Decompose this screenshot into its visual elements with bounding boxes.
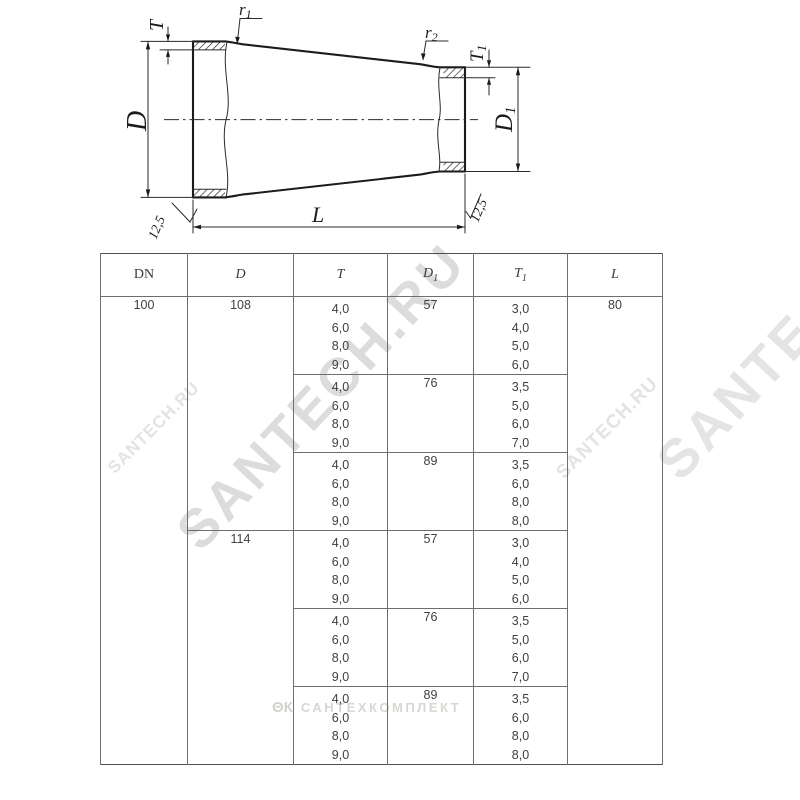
- cell-line: 8,0: [474, 727, 567, 746]
- cell-line: 8,0: [474, 746, 567, 765]
- cell-line: 4,0: [474, 553, 567, 572]
- table-header-l: L: [568, 254, 663, 297]
- cell-line: 8,0: [474, 512, 567, 531]
- cell-line: 7,0: [474, 434, 567, 453]
- cell-line: 4,0: [294, 378, 387, 397]
- cell-line: 3,0: [474, 300, 567, 319]
- cell-line: 4,0: [294, 612, 387, 631]
- cell-t1-values: 3,56,08,08,0: [474, 687, 568, 765]
- cell-l: 80: [568, 297, 663, 765]
- cell-line: 5,0: [474, 571, 567, 590]
- cell-line: 4,0: [474, 319, 567, 338]
- cell-line: 5,0: [474, 631, 567, 650]
- cell-line: 3,5: [474, 612, 567, 631]
- table-header-dn: DN: [101, 254, 188, 297]
- cell-dn: 100: [101, 297, 188, 765]
- label-t1: T1: [467, 45, 489, 62]
- cell-line: 8,0: [474, 493, 567, 512]
- cell-t-values: 4,06,08,09,0: [294, 531, 388, 609]
- cell-line: 6,0: [294, 475, 387, 494]
- cell-line: 3,5: [474, 690, 567, 709]
- technical-drawing: T D r1 r2 T1 D1 L 12,5 12,5: [0, 0, 800, 250]
- cell-t1-values: 3,56,08,08,0: [474, 453, 568, 531]
- cell-line: 4,0: [294, 456, 387, 475]
- cell-line: 5,0: [474, 337, 567, 356]
- cell-line: 9,0: [294, 512, 387, 531]
- page: SANTECH.RU SANTECH.RU SANTECH.RU SANTECH…: [0, 0, 800, 800]
- cell-line: 3,5: [474, 456, 567, 475]
- cell-t1-values: 3,04,05,06,0: [474, 531, 568, 609]
- cell-line: 6,0: [294, 631, 387, 650]
- label-roughness-left: 12,5: [145, 213, 168, 241]
- cell-line: 6,0: [474, 649, 567, 668]
- cell-line: 9,0: [294, 434, 387, 453]
- cell-line: 3,0: [474, 534, 567, 553]
- table-header-t: T: [294, 254, 388, 297]
- cell-line: 9,0: [294, 356, 387, 375]
- label-r1: r1: [239, 0, 252, 21]
- cell-line: 8,0: [294, 727, 387, 746]
- cell-d1: 76: [388, 375, 474, 453]
- cell-line: 6,0: [474, 356, 567, 375]
- cell-line: 8,0: [294, 337, 387, 356]
- cell-line: 6,0: [474, 415, 567, 434]
- table-header-d1: D1: [388, 254, 474, 297]
- cell-line: 6,0: [294, 397, 387, 416]
- cell-line: 6,0: [474, 709, 567, 728]
- cell-t1-values: 3,55,06,07,0: [474, 609, 568, 687]
- cell-d1: 57: [388, 297, 474, 375]
- cell-line: 6,0: [474, 590, 567, 609]
- cell-t-values: 4,06,08,09,0: [294, 297, 388, 375]
- cell-line: 3,5: [474, 378, 567, 397]
- cell-line: 7,0: [474, 668, 567, 687]
- cell-line: 8,0: [294, 571, 387, 590]
- cell-d1: 76: [388, 609, 474, 687]
- cell-line: 6,0: [474, 475, 567, 494]
- cell-t1-values: 3,55,06,07,0: [474, 375, 568, 453]
- cell-t-values: 4,06,08,09,0: [294, 609, 388, 687]
- cell-line: 9,0: [294, 590, 387, 609]
- dimension-lines: [141, 19, 530, 234]
- cell-t-values: 4,06,08,09,0: [294, 453, 388, 531]
- cell-line: 4,0: [294, 690, 387, 709]
- cell-line: 6,0: [294, 709, 387, 728]
- cell-line: 9,0: [294, 746, 387, 765]
- cell-line: 8,0: [294, 493, 387, 512]
- cell-t1-values: 3,04,05,06,0: [474, 297, 568, 375]
- dimension-labels: T D r1 r2 T1 D1 L 12,5 12,5: [122, 0, 519, 241]
- label-d1: D1: [491, 106, 519, 133]
- label-l: L: [311, 202, 324, 227]
- table-header-t1: T1: [474, 254, 568, 297]
- label-roughness-right: 12,5: [467, 196, 490, 224]
- table-row: 100 108 4,06,08,09,0 57 3,04,05,06,0 80: [101, 297, 663, 375]
- cell-d: 114: [188, 531, 294, 765]
- cell-t-values: 4,06,08,09,0: [294, 375, 388, 453]
- cell-line: 6,0: [294, 319, 387, 338]
- cell-line: 8,0: [294, 649, 387, 668]
- reducer-spec-table: DN D T D1 T1 L 100 108 4,06,08,09,0 57 3…: [100, 253, 663, 765]
- cell-line: 5,0: [474, 397, 567, 416]
- cell-d1: 57: [388, 531, 474, 609]
- table-header-d: D: [188, 254, 294, 297]
- cell-line: 4,0: [294, 534, 387, 553]
- cell-d1: 89: [388, 687, 474, 765]
- cell-d1: 89: [388, 453, 474, 531]
- cell-t-values: 4,06,08,09,0: [294, 687, 388, 765]
- cell-line: 9,0: [294, 668, 387, 687]
- label-d: D: [122, 111, 153, 132]
- cell-line: 4,0: [294, 300, 387, 319]
- cell-line: 8,0: [294, 415, 387, 434]
- table-header-row: DN D T D1 T1 L: [101, 254, 663, 297]
- cell-d: 108: [188, 297, 294, 531]
- label-r2: r2: [425, 23, 438, 44]
- cell-line: 6,0: [294, 553, 387, 572]
- label-t: T: [146, 18, 168, 31]
